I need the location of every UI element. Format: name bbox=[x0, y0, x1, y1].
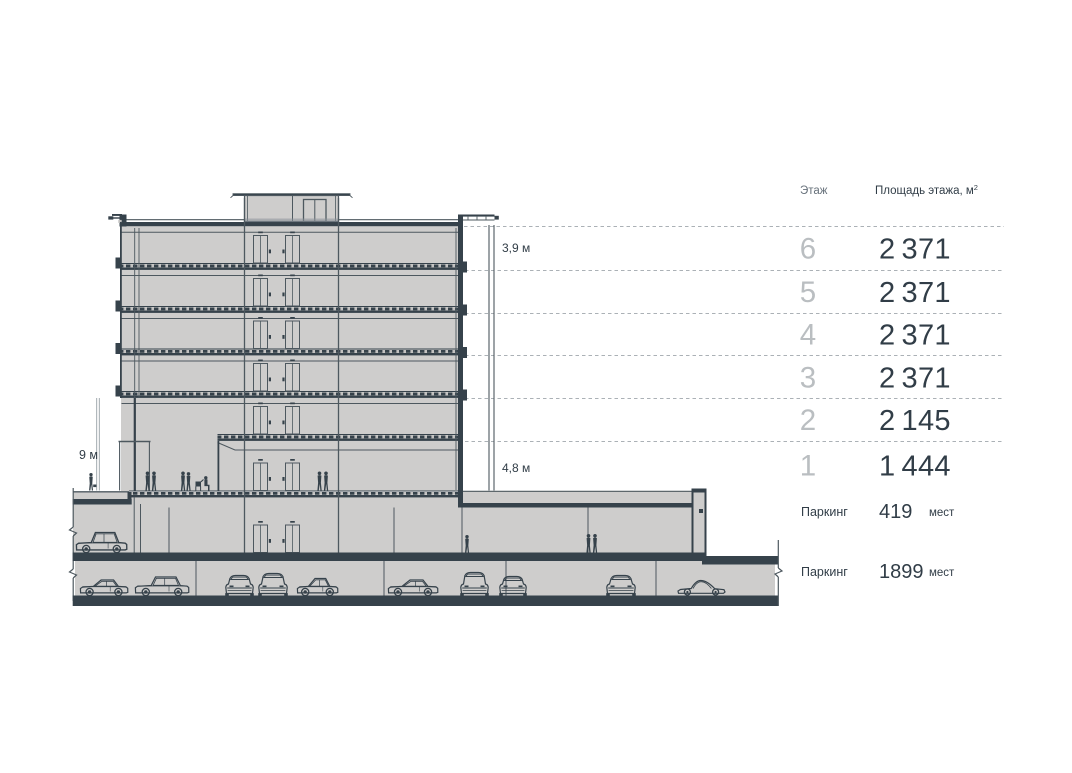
svg-text:2: 2 bbox=[800, 404, 816, 437]
svg-text:4,8 м: 4,8 м bbox=[502, 461, 530, 475]
svg-text:Этаж: Этаж bbox=[800, 185, 828, 197]
svg-text:2 145: 2 145 bbox=[879, 405, 951, 437]
svg-text:3: 3 bbox=[800, 362, 816, 395]
svg-text:9 м: 9 м bbox=[79, 448, 98, 462]
svg-text:2 371: 2 371 bbox=[879, 234, 951, 266]
svg-text:4: 4 bbox=[800, 319, 816, 352]
svg-text:2 371: 2 371 bbox=[879, 363, 951, 395]
svg-text:Паркинг: Паркинг bbox=[801, 565, 848, 579]
svg-text:Паркинг: Паркинг bbox=[801, 505, 848, 519]
svg-text:2 371: 2 371 bbox=[879, 320, 951, 352]
svg-text:6: 6 bbox=[800, 233, 816, 266]
svg-text:мест: мест bbox=[929, 567, 955, 579]
svg-text:1899: 1899 bbox=[879, 561, 924, 583]
svg-text:мест: мест bbox=[929, 507, 955, 519]
svg-text:1 444: 1 444 bbox=[879, 451, 951, 483]
svg-text:5: 5 bbox=[800, 276, 816, 309]
svg-text:Площадь этажа, м2: Площадь этажа, м2 bbox=[875, 183, 978, 197]
svg-text:419: 419 bbox=[879, 501, 912, 523]
svg-text:3,9 м: 3,9 м bbox=[502, 241, 530, 255]
svg-text:2 371: 2 371 bbox=[879, 277, 951, 309]
svg-text:1: 1 bbox=[800, 450, 816, 483]
